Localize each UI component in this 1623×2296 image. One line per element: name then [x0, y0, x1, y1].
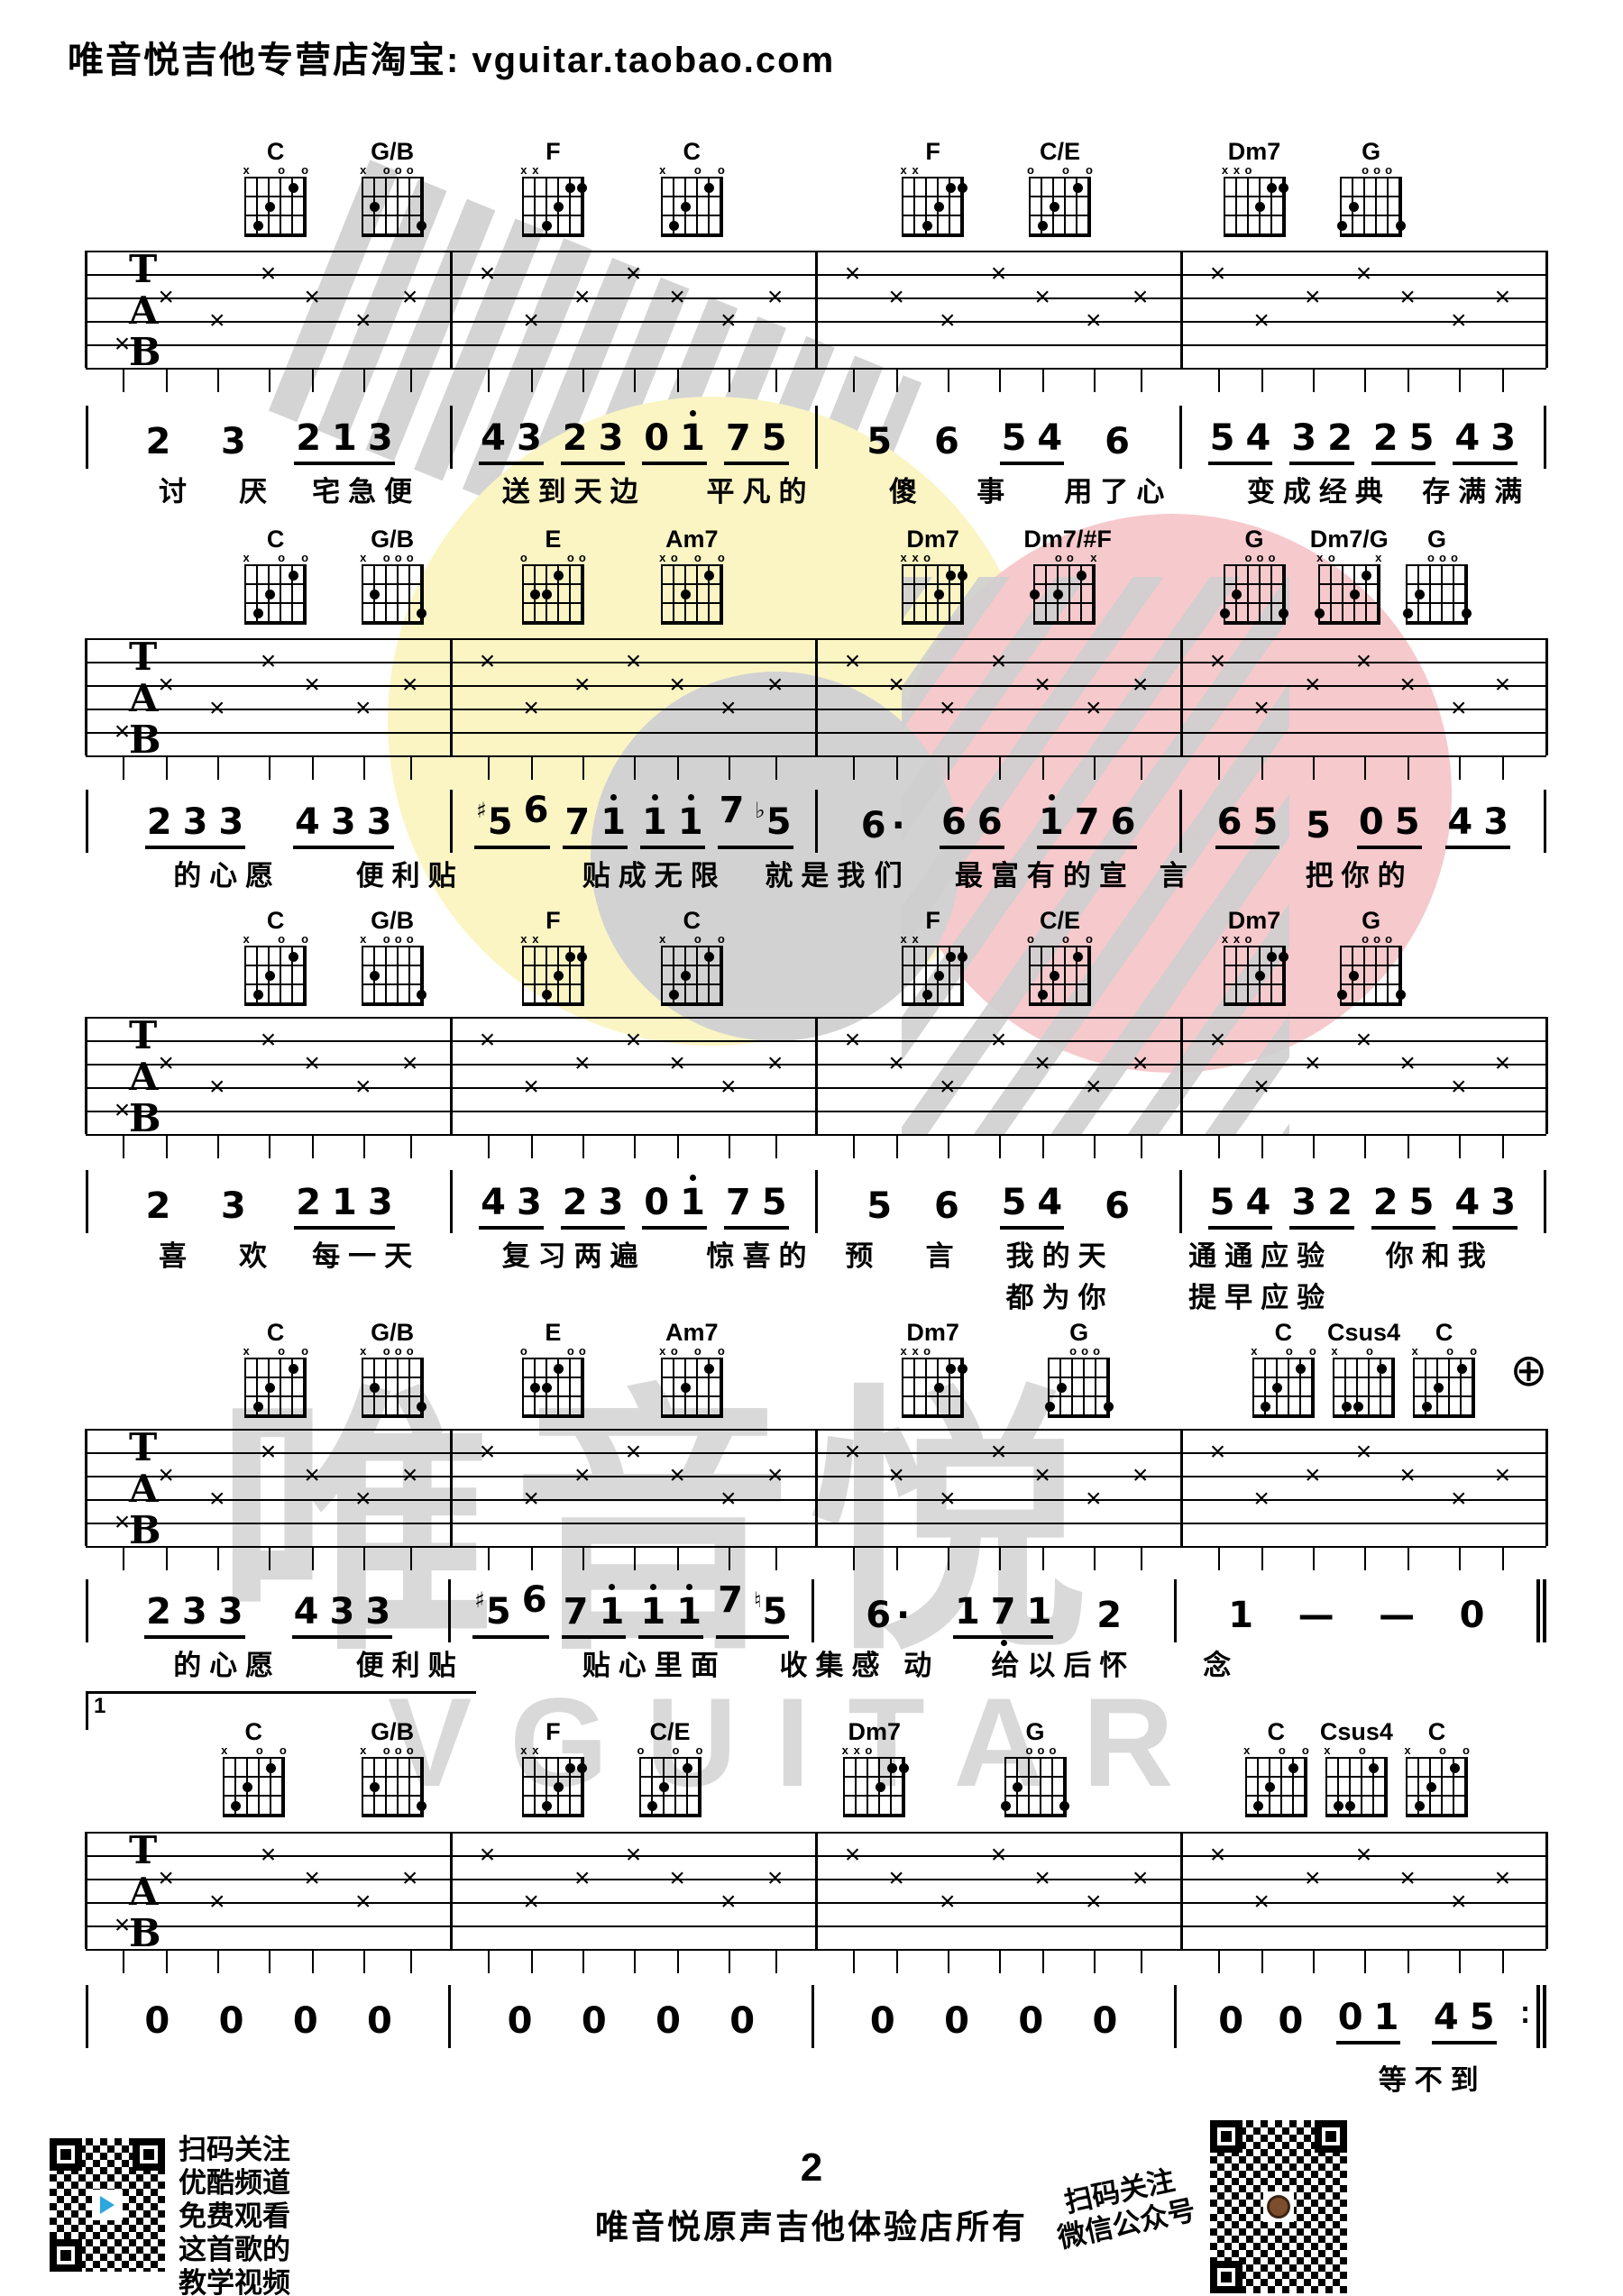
- lyric-line-2: 都为你提早应验: [86, 1275, 1546, 1313]
- chord-name: Am7: [651, 527, 732, 551]
- tab-stem: [948, 1949, 949, 1973]
- chord-name: C/E: [629, 1720, 711, 1743]
- finger-dot: [934, 590, 944, 599]
- open-marker: o: [1444, 1344, 1456, 1358]
- melody-note: 0: [582, 2001, 607, 2041]
- finger-dot: [265, 971, 275, 981]
- finger-dot: [1255, 202, 1265, 212]
- melody-note: 1: [1039, 802, 1064, 842]
- tab-stem: [729, 1949, 730, 1973]
- chord-name: G: [1039, 1321, 1120, 1344]
- lyric-text: 你和我: [1386, 1233, 1494, 1274]
- strum-x-mark: ×: [261, 1439, 277, 1466]
- tab-stem: [531, 755, 533, 780]
- melody-note: 2: [1096, 1596, 1122, 1635]
- tab-letter-T: T: [129, 638, 157, 676]
- open-marker: o: [1468, 1344, 1480, 1358]
- melody-measure: 56546: [815, 1170, 1179, 1233]
- open-marker: o: [392, 1743, 404, 1757]
- chord-Dm7: Dm7xxo: [893, 1321, 974, 1418]
- strum-x-mark: ×: [845, 261, 861, 288]
- finger-dot: [1315, 608, 1325, 618]
- no-marker: [703, 1344, 715, 1358]
- chord-G: Gooo: [1214, 527, 1295, 625]
- melody-note: 1: [1374, 1998, 1399, 2037]
- tab-staff-line: [86, 368, 1546, 370]
- chord-grid: [1224, 946, 1286, 1006]
- no-marker: [1288, 1743, 1299, 1757]
- chord-grid: [522, 1757, 584, 1817]
- tab-stem: [1408, 1546, 1409, 1570]
- finger-dot: [417, 1402, 426, 1412]
- finger-dot: [1057, 1383, 1067, 1393]
- melody-note: 2: [1327, 418, 1352, 458]
- mute-marker: x: [357, 551, 369, 564]
- finger-dot: [1050, 971, 1059, 981]
- no-marker: [875, 1743, 886, 1757]
- chord-open-mute-markers: xoo: [651, 163, 732, 177]
- open-marker: o: [692, 932, 703, 946]
- finger-dot: [958, 1364, 967, 1374]
- melody-number-line: 23213432301755654654322543: [86, 1170, 1546, 1233]
- chord-name: F: [512, 140, 593, 163]
- strum-x-mark: ×: [1305, 1462, 1321, 1489]
- no-marker: [288, 932, 299, 946]
- mute-marker: x: [1329, 1344, 1341, 1358]
- no-marker: [1000, 1743, 1012, 1757]
- chord-grid: [244, 946, 307, 1006]
- chord-open-mute-markers: xox: [1308, 551, 1389, 564]
- no-marker: [252, 1344, 264, 1358]
- note-group: 2: [144, 1186, 173, 1230]
- no-marker: [646, 1743, 658, 1757]
- tab-stem: [166, 1134, 168, 1158]
- strum-x-mark: ×: [1305, 1050, 1321, 1077]
- melody-note: 3: [368, 418, 393, 458]
- tab-stem: [853, 1949, 855, 1973]
- chord-open-mute-markers: ooo: [512, 551, 593, 564]
- melody-note: 1: [680, 1183, 705, 1222]
- open-marker: o: [1091, 1344, 1103, 1358]
- beamed-note-group: 32: [1289, 1183, 1354, 1230]
- tab-stem: [1459, 1546, 1461, 1570]
- mute-marker: x: [357, 1344, 369, 1358]
- melody-measure: 0000: [448, 1985, 811, 2048]
- finger-dot: [1296, 1364, 1306, 1374]
- chord-open-mute-markers: xoo: [1404, 1344, 1485, 1358]
- tab-stem: [123, 368, 124, 392]
- tab-stem: [896, 755, 898, 780]
- open-marker: o: [1449, 551, 1461, 564]
- chord-name: Dm7: [1214, 909, 1295, 932]
- chord-C: Cxoo: [651, 909, 732, 1006]
- no-marker: [1336, 163, 1348, 177]
- chord-G: Gooo: [1331, 140, 1412, 237]
- tab-stem: [312, 368, 314, 392]
- melody-note: 1: [1228, 1596, 1253, 1635]
- melody-note: 0: [219, 2001, 244, 2041]
- melody-note: 5: [762, 1183, 787, 1222]
- chord-row: CxooG/BxoooFxxCxooFxxC/EoooDm7xxoGooo: [86, 909, 1546, 1015]
- no-marker: [1368, 1743, 1380, 1757]
- tab-stem: [166, 1949, 168, 1973]
- strum-x-mark: ×: [523, 1889, 539, 1916]
- beamed-note-group: 233: [144, 1592, 245, 1639]
- finger-dot: [1220, 608, 1230, 618]
- finger-dot: [542, 1383, 552, 1393]
- tab-stem: [729, 1546, 730, 1570]
- strum-x-mark: ×: [626, 1027, 642, 1054]
- tab-stem: [217, 368, 219, 392]
- finger-dot: [681, 590, 691, 599]
- no-marker: [416, 932, 427, 946]
- tab-stem: [269, 1134, 270, 1158]
- strum-x-mark: ×: [304, 672, 320, 699]
- chord-grid: [1252, 1358, 1315, 1418]
- chord-open-mute-markers: xxo: [1214, 932, 1295, 946]
- no-marker: [703, 163, 715, 177]
- strum-x-mark: ×: [402, 284, 418, 311]
- chord-name: F: [893, 140, 974, 163]
- chord-row: CxooG/BxoooEoooAm7xoooDm7xxoDm7/#FooxGoo…: [86, 527, 1546, 634]
- strum-x-mark: ×: [626, 648, 642, 675]
- strum-x-mark: ×: [1495, 284, 1511, 311]
- note-group: —: [1297, 1596, 1336, 1639]
- chord-name: C: [235, 909, 316, 932]
- tab-stem: [775, 755, 777, 780]
- melody-measure: 6·66176: [815, 790, 1179, 853]
- strum-x-mark: ×: [115, 331, 131, 358]
- strum-x-mark: ×: [1399, 284, 1416, 311]
- melody-note: ♯5: [474, 1580, 510, 1632]
- no-marker: [1278, 163, 1289, 177]
- no-marker: [1254, 932, 1266, 946]
- no-marker: [1041, 551, 1052, 564]
- tab-stem: [582, 368, 584, 392]
- no-marker: [529, 551, 541, 564]
- strum-x-mark: ×: [402, 1865, 418, 1892]
- tab-stem: [948, 755, 949, 780]
- melody-note: 7: [991, 1592, 1016, 1632]
- mute-marker: x: [910, 932, 922, 946]
- chord-name: F: [893, 909, 974, 932]
- open-marker: o: [392, 163, 404, 177]
- finger-dot: [265, 1383, 275, 1393]
- melody-measure: ♯5671117♮5: [448, 1579, 811, 1642]
- tab-barline: [1545, 1832, 1548, 1949]
- lyric-text: 的心愿: [173, 853, 281, 893]
- melody-note: 0: [1093, 2001, 1118, 2041]
- strum-x-mark: ×: [1451, 1074, 1467, 1101]
- finger-dot: [1030, 590, 1040, 599]
- melody-measure: ♯5671117♭5: [450, 790, 814, 853]
- note-group: 0: [291, 2001, 320, 2044]
- finger-dot: [946, 183, 956, 193]
- no-marker: [369, 1743, 381, 1757]
- tab-stem: [531, 1546, 533, 1570]
- tab-stem: [896, 1546, 898, 1570]
- chord-name: C: [1235, 1720, 1316, 1743]
- melody-measure: 23213: [86, 1170, 450, 1233]
- tab-barline: [85, 251, 87, 368]
- open-marker: o: [715, 163, 727, 177]
- chord-grid: [362, 177, 424, 237]
- melody-note: 6: [1105, 422, 1130, 462]
- no-marker: [288, 163, 299, 177]
- lyric-line: 的心愿便利贴贴成无限就是我们最富有的宣言把你的: [86, 853, 1546, 891]
- chord-name: F: [512, 909, 593, 932]
- melody-note: 2: [563, 418, 588, 458]
- tab-staff-line: [86, 1134, 1546, 1136]
- lyric-text: 宅急便: [312, 469, 420, 509]
- open-marker: o: [1276, 1743, 1288, 1757]
- tab-stem: [363, 755, 365, 780]
- finger-dot: [1462, 608, 1472, 618]
- chord-open-mute-markers: xoo: [235, 551, 316, 564]
- lyric-text: 傻: [889, 469, 925, 509]
- melody-note: 0: [1338, 1998, 1363, 2037]
- no-marker: [680, 551, 692, 564]
- beamed-note-group: 213: [294, 1183, 395, 1230]
- chord-name: C: [1242, 1321, 1324, 1344]
- beamed-note-group: 71: [562, 1592, 627, 1639]
- tab-stem: [677, 368, 679, 392]
- no-marker: [1037, 932, 1049, 946]
- chord-C: Cxoo: [1404, 1321, 1485, 1418]
- score-area: CxooG/BxoooFxxCxooFxxC/EoooDm7xxoGoooTAB…: [0, 0, 1623, 2296]
- no-marker: [1254, 163, 1266, 177]
- open-marker: o: [692, 163, 703, 177]
- chord-name: G: [1214, 527, 1295, 551]
- melody-measure: 54322543: [1179, 406, 1546, 469]
- open-marker: o: [1047, 1743, 1059, 1757]
- strum-x-mark: ×: [845, 648, 861, 675]
- open-marker: o: [299, 1344, 311, 1358]
- tab-stem: [1459, 1949, 1461, 1973]
- strum-x-mark: ×: [1034, 1865, 1050, 1892]
- strum-x-mark: ×: [669, 284, 685, 311]
- note-group: —: [1377, 1596, 1417, 1639]
- strum-x-mark: ×: [940, 1486, 956, 1513]
- tab-stem: [677, 755, 679, 780]
- strum-x-mark: ×: [1495, 672, 1511, 699]
- strum-x-mark: ×: [355, 1074, 371, 1101]
- lyric-text: 厌: [239, 469, 275, 509]
- finger-dot: [266, 1763, 276, 1773]
- mute-marker: x: [529, 932, 541, 946]
- beamed-note-group: ♯56: [474, 791, 550, 849]
- melody-note: 3: [365, 1592, 390, 1632]
- no-marker: [703, 932, 715, 946]
- finger-dot: [542, 590, 552, 599]
- finger-dot: [370, 1383, 380, 1393]
- melody-measure: 0000: [86, 1985, 448, 2048]
- open-marker: o: [863, 1743, 875, 1757]
- melody-note: 7: [726, 1183, 751, 1222]
- chord-name: G/B: [352, 140, 433, 163]
- finger-dot: [1013, 1782, 1022, 1792]
- no-marker: [1076, 551, 1087, 564]
- strum-x-mark: ×: [261, 261, 277, 288]
- open-marker: o: [1356, 1743, 1368, 1757]
- beamed-note-group: 7♮5: [716, 1580, 789, 1639]
- lyric-text: 欢: [239, 1233, 275, 1274]
- tab-letter-T: T: [129, 1429, 157, 1467]
- tab-stem: [166, 368, 168, 392]
- strum-x-mark: ×: [1210, 1842, 1226, 1869]
- tab-staff: TAB××××××××××××××××××××××××××××: [86, 638, 1546, 755]
- no-marker: [1426, 1743, 1437, 1757]
- strum-x-mark: ×: [1253, 1074, 1270, 1101]
- tab-stem: [1459, 755, 1461, 780]
- melody-note: 4: [1454, 418, 1480, 458]
- chord-open-mute-markers: xoo: [1242, 1344, 1324, 1358]
- chord-name: G: [1331, 140, 1412, 163]
- chord-G/B: G/Bxooo: [352, 909, 433, 1006]
- mute-marker: x: [910, 163, 922, 177]
- tab-stem: [1313, 1949, 1315, 1973]
- open-marker: o: [668, 551, 680, 564]
- tab-stem: [1218, 1546, 1220, 1570]
- note-group: 6: [932, 422, 961, 465]
- finger-dot: [289, 1364, 298, 1374]
- tab-stem: [410, 1949, 412, 1973]
- lyric-text: 便利贴: [356, 853, 464, 893]
- chord-open-mute-markers: xx: [893, 163, 974, 177]
- caption-line: 教学视频: [179, 2266, 290, 2296]
- strum-x-mark: ×: [1086, 1889, 1102, 1916]
- no-marker: [1278, 551, 1289, 564]
- finger-dot: [554, 971, 564, 981]
- no-marker: [1037, 163, 1049, 177]
- strum-x-mark: ×: [888, 1050, 904, 1077]
- strum-x-mark: ×: [1034, 1050, 1050, 1077]
- strum-x-mark: ×: [1086, 1074, 1102, 1101]
- melody-note: 0: [1218, 2001, 1243, 2041]
- tab-staff: TAB××××××××××××××××××××××××××××: [86, 1832, 1546, 1949]
- finger-dot: [1073, 183, 1083, 193]
- no-marker: [1219, 551, 1231, 564]
- melody-note: 2: [146, 1186, 171, 1226]
- finger-dot: [1279, 183, 1288, 193]
- note-group: 2: [1095, 1596, 1123, 1639]
- strum-x-mark: ×: [1034, 1462, 1050, 1489]
- note-group: 0: [728, 2001, 756, 2044]
- note-group: 5: [865, 422, 894, 465]
- chord-Dm7/#F: Dm7/#Foox: [1023, 527, 1105, 625]
- finger-dot: [253, 1402, 263, 1412]
- open-marker: o: [1461, 1743, 1472, 1757]
- finger-dot: [1396, 221, 1406, 231]
- strum-x-mark: ×: [1253, 1889, 1270, 1916]
- chord-name: F: [512, 1720, 593, 1743]
- chord-open-mute-markers: ooo: [995, 1743, 1076, 1757]
- no-marker: [564, 1743, 576, 1757]
- chord-grid: [1406, 1757, 1468, 1817]
- qr-finder: [1210, 2261, 1242, 2293]
- melody-note: 3: [1490, 418, 1516, 458]
- wechat-brand-icon: [1263, 2191, 1294, 2222]
- melody-note: 0: [1359, 802, 1384, 842]
- no-marker: [933, 932, 945, 946]
- mute-marker: x: [518, 163, 529, 177]
- lyric-text: 最富有的宣: [955, 853, 1135, 893]
- tab-stem: [363, 1134, 365, 1158]
- strum-x-mark: ×: [991, 1439, 1007, 1466]
- beamed-note-group: 43: [1453, 1183, 1518, 1230]
- melody-note: 7: [564, 1592, 589, 1632]
- tab-stem: [1459, 1134, 1461, 1158]
- finger-dot: [669, 990, 679, 1000]
- open-marker: o: [276, 932, 288, 946]
- chord-grid: [362, 1757, 424, 1817]
- melody-note: 3: [517, 418, 542, 458]
- open-marker: o: [381, 1344, 392, 1358]
- finger-dot: [565, 952, 575, 962]
- chord-open-mute-markers: ooo: [1331, 163, 1412, 177]
- mute-marker: x: [656, 1344, 668, 1358]
- finger-dot: [1038, 990, 1048, 1000]
- beamed-note-group: 54: [1000, 418, 1065, 465]
- chord-grid: [522, 564, 584, 625]
- strum-x-mark: ×: [523, 1074, 539, 1101]
- no-marker: [576, 1743, 588, 1757]
- strum-x-mark: ×: [1305, 672, 1321, 699]
- chord-F: Fxx: [512, 140, 593, 237]
- chord-grid: [1224, 564, 1286, 625]
- chord-G/B: G/Bxooo: [352, 140, 433, 237]
- tab-letter-B: B: [129, 1915, 161, 1953]
- strum-x-mark: ×: [1210, 261, 1226, 288]
- chord-grid: [661, 564, 723, 625]
- chord-row: CxooG/BxoooFxxCxooFxxC/EoooDm7xxoGooo: [86, 140, 1546, 246]
- melody-note: —: [1298, 1596, 1334, 1635]
- chord-grid: [1029, 946, 1091, 1006]
- no-marker: [1072, 163, 1084, 177]
- tab-letter-B: B: [129, 334, 161, 371]
- melody-note: 1: [678, 802, 703, 842]
- no-marker: [1029, 551, 1041, 564]
- lyric-text: 预: [845, 1233, 881, 1274]
- tab-stem: [1094, 1546, 1096, 1570]
- chord-name: G: [1397, 527, 1478, 551]
- open-marker: o: [1371, 932, 1383, 946]
- no-marker: [564, 932, 576, 946]
- tab-stem: [123, 1949, 124, 1973]
- chord-name: G/B: [352, 527, 433, 551]
- finger-dot: [530, 1383, 540, 1393]
- tab-barline: [450, 1017, 453, 1134]
- chord-grid: [902, 177, 964, 237]
- no-marker: [945, 1344, 957, 1358]
- chord-G: Gooo: [1039, 1321, 1120, 1418]
- no-marker: [242, 1743, 253, 1757]
- melody-note: 3: [1490, 1183, 1516, 1222]
- no-marker: [1044, 1344, 1056, 1358]
- lyric-text: 用了心: [1064, 469, 1172, 509]
- chord-grid: [902, 1358, 964, 1418]
- tab-stem: [677, 1546, 679, 1570]
- melody-note: 2: [146, 1592, 171, 1632]
- melody-note: 5: [1252, 802, 1278, 842]
- finger-dot: [922, 990, 932, 1000]
- strum-x-mark: ×: [720, 1074, 737, 1101]
- open-marker: o: [1025, 932, 1037, 946]
- qr-finder: [1210, 2120, 1242, 2153]
- chord-G/B: G/Bxooo: [352, 527, 433, 625]
- finger-dot: [1337, 990, 1347, 1000]
- note-group: 6: [1103, 422, 1132, 465]
